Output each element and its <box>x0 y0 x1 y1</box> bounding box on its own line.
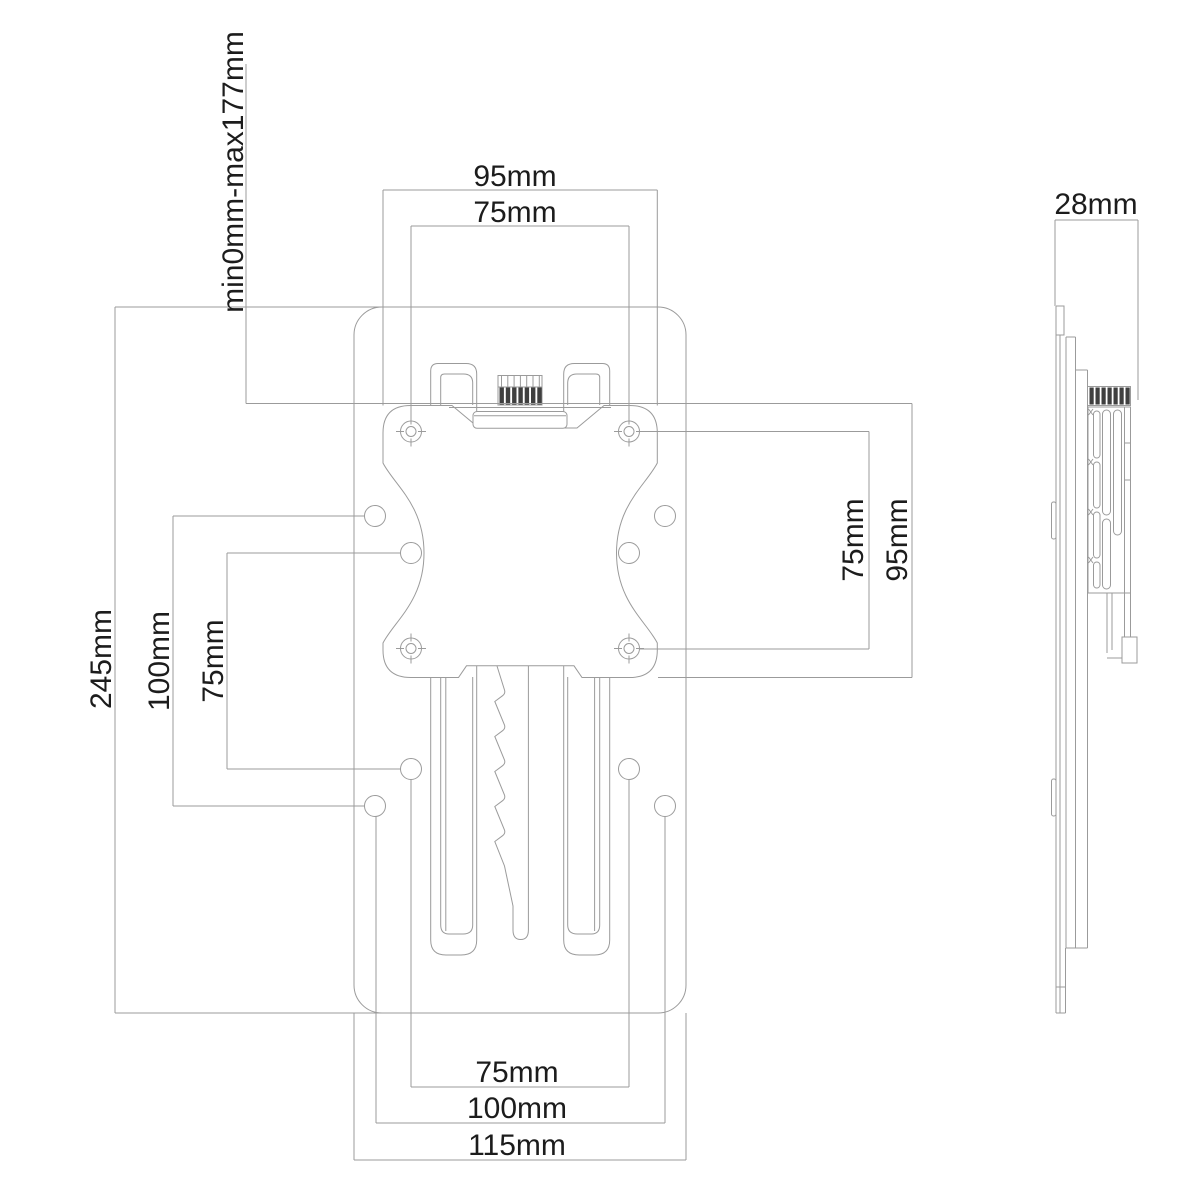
latch-bar <box>473 412 567 429</box>
front-view <box>354 307 686 1013</box>
adjustment-knob <box>498 376 542 406</box>
technical-drawing: 245mm 100mm 75mm min0mm-max177mm 95mm <box>0 0 1200 1200</box>
side-hook <box>1122 637 1137 663</box>
latch-outline <box>473 412 567 429</box>
vesa-adapter-plate <box>383 406 657 678</box>
dim-label-back-holes-100: 100mm <box>143 611 176 711</box>
side-knob <box>1088 387 1131 406</box>
dim-label-vesa-holes-vertical: 75mm <box>837 498 870 581</box>
dim-label-adjustment-range: min0mm-max177mm <box>217 31 250 313</box>
mount-hole <box>619 759 640 780</box>
mount-hole <box>365 506 386 527</box>
mount-hole <box>401 759 422 780</box>
dim-label-back-holes-75: 75mm <box>197 619 230 702</box>
mount-hole <box>655 506 676 527</box>
dim-label-vesa-plate-height: 95mm <box>881 498 914 581</box>
dim-label-plate-height: 245mm <box>85 609 118 709</box>
dim-label-vesa-holes-horizontal: 75mm <box>473 196 556 229</box>
mount-hole <box>655 796 676 817</box>
dim-label-side-depth: 28mm <box>1054 188 1137 221</box>
dim-label-back-holes-75-horizontal: 75mm <box>475 1056 558 1089</box>
dim-label-back-holes-100-horizontal: 100mm <box>467 1092 567 1125</box>
dim-label-plate-width: 115mm <box>468 1129 566 1162</box>
knob-knurl-ribs <box>500 388 542 405</box>
mount-hole <box>619 543 640 564</box>
mount-hole <box>365 796 386 817</box>
dim-label-vesa-plate-width: 95mm <box>473 160 556 193</box>
mount-hole <box>401 543 422 564</box>
